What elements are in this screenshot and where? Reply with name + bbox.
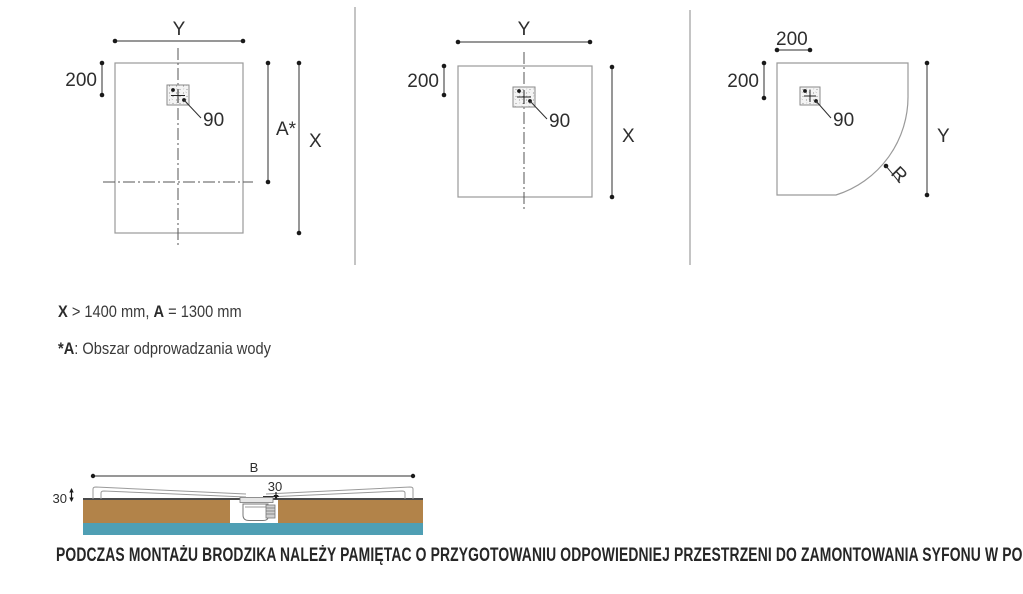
dim-label-x: X [622,126,635,147]
dimension-y: Y [925,61,950,198]
installation-warning-text: PODCZAS MONTAŻU BRODZIKA NALEŻY PAMIĘTAC… [56,545,1023,566]
technical-drawing: Y 200 90 A* X [0,0,1023,594]
dim-label-90: 90 [549,111,570,132]
dim-label-90: 90 [203,110,224,131]
dim-label-200-top: 200 [776,29,808,50]
dim-label-y: Y [173,19,186,40]
dim-label-r: R [886,163,911,188]
dim-label-b: B [250,460,259,475]
dimension-y: Y [456,19,593,44]
dim-label-90: 90 [833,110,854,131]
dim-label-30-left: 30 [53,491,67,506]
dimension-x: X [610,65,635,200]
spec-a-symbol: A [153,302,164,321]
screed-layer [83,523,423,535]
dim-label-y: Y [937,126,950,147]
dimension-x: X [297,61,322,236]
drain-area-symbol: *A [58,339,74,358]
dimension-radius: R [884,163,911,188]
dim-label-a-star: A* [276,119,297,140]
tray-outline [458,66,592,197]
cross-section-diagram: B 30 30 [53,460,423,535]
dim-label-200: 200 [407,71,439,92]
dimension-200-top: 200 [775,29,813,52]
dimension-200-left: 200 [727,61,766,101]
drain-area-text: : Obszar odprowadzania wody [74,339,271,358]
dimension-200: 200 [407,64,446,98]
rectangular-tray-diagram: Y 200 90 A* X [65,19,322,247]
dim-label-30-center: 30 [268,479,282,494]
square-tray-diagram: Y 200 90 X [407,19,635,210]
spec-a-value: = 1300 mm [164,302,242,321]
quadrant-tray-diagram: 200 200 90 Y R [727,29,950,197]
dim-label-200: 200 [65,70,97,91]
siphon [240,498,275,521]
dim-label-x: X [309,131,322,152]
drain-area-note: *A: Obszar odprowadzania wody [58,339,271,359]
dimension-30-left: 30 [53,488,74,506]
spec-x-value: > 1400 mm, [68,302,154,321]
dimension-y: Y [113,19,246,43]
dim-label-200-left: 200 [727,71,759,92]
installation-warning: PODCZAS MONTAŻU BRODZIKA NALEŻY PAMIĘTAC… [56,545,1023,567]
dimension-b: B [91,460,415,478]
dimension-200: 200 [65,61,104,98]
spec-x-symbol: X [58,302,68,321]
dimension-a-star: A* [266,61,297,185]
installation-manual-page: Y 200 90 A* X [0,0,1023,594]
dimension-spec-note: X > 1400 mm, A = 1300 mm [58,302,242,322]
dim-label-y: Y [518,19,531,40]
